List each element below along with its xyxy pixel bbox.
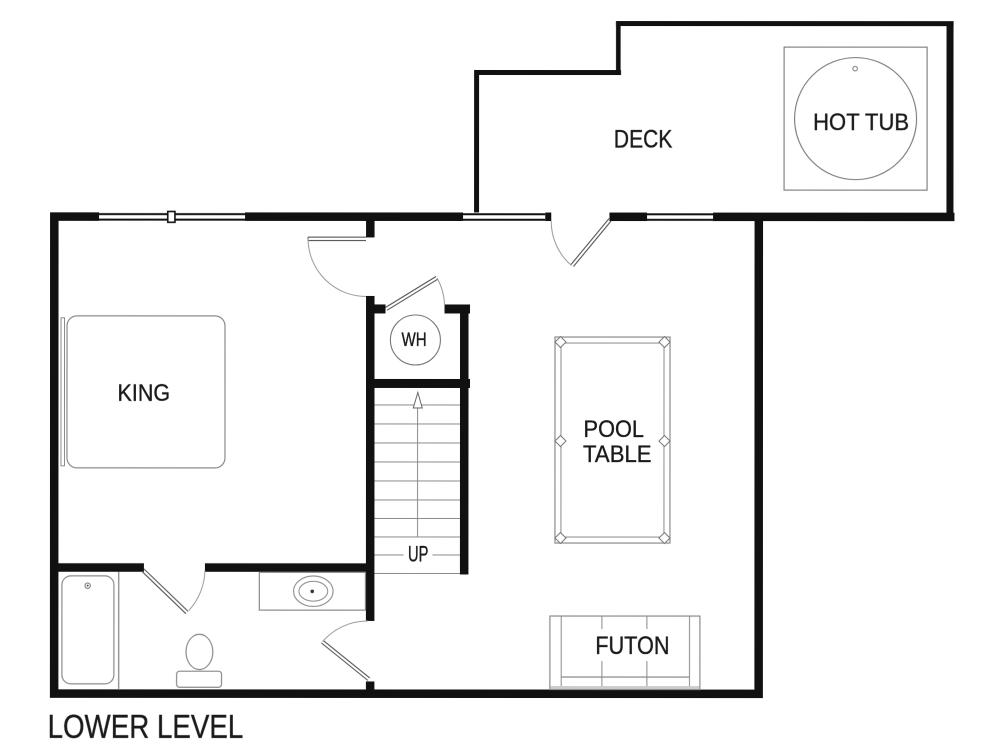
svg-text:DECK: DECK xyxy=(614,126,673,154)
svg-text:FUTON: FUTON xyxy=(595,632,669,660)
svg-text:UP: UP xyxy=(408,541,429,566)
svg-text:WH: WH xyxy=(402,330,427,351)
svg-text:LOWER LEVEL: LOWER LEVEL xyxy=(48,708,244,745)
svg-text:POOL: POOL xyxy=(584,416,645,443)
svg-text:TABLE: TABLE xyxy=(583,441,652,468)
svg-text:KING: KING xyxy=(118,380,171,407)
svg-text:HOT TUB: HOT TUB xyxy=(813,109,909,136)
